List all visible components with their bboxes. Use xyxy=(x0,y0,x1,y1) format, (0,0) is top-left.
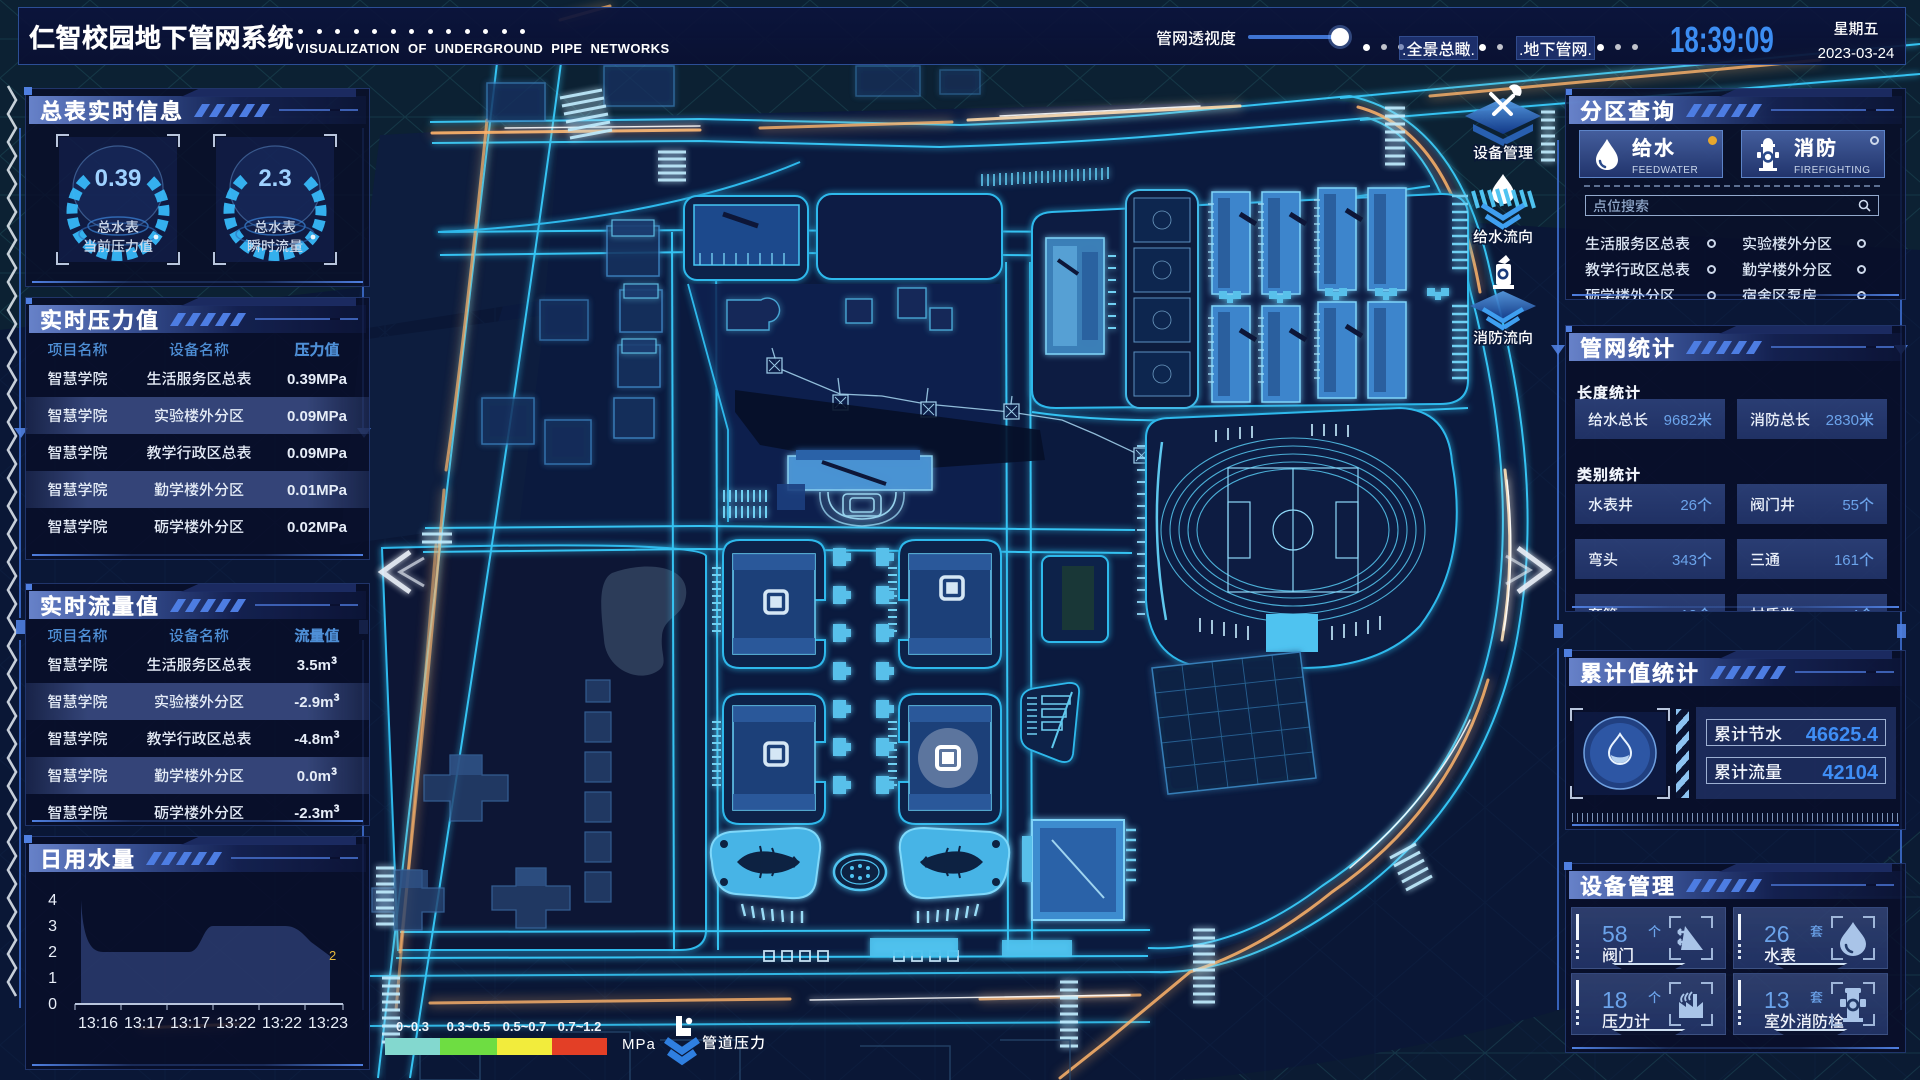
svg-text:13:16: 13:16 xyxy=(78,1009,118,1033)
svg-text:2: 2 xyxy=(329,945,336,964)
svg-text:13:22: 13:22 xyxy=(216,1009,256,1033)
svg-text:13:17: 13:17 xyxy=(124,1009,164,1033)
svg-text:13:23: 13:23 xyxy=(308,1009,348,1033)
svg-text:1: 1 xyxy=(48,964,57,988)
svg-text:0.39: 0.39 xyxy=(95,158,142,193)
svg-text:给水流向: 给水流向 xyxy=(1473,226,1533,247)
svg-text:3: 3 xyxy=(48,912,57,936)
svg-text:13:17: 13:17 xyxy=(170,1009,210,1033)
svg-text:4: 4 xyxy=(48,886,57,910)
svg-text:0: 0 xyxy=(48,990,57,1014)
svg-text:2.3: 2.3 xyxy=(258,158,291,193)
svg-text:消防流向: 消防流向 xyxy=(1473,327,1533,348)
svg-text:13:22: 13:22 xyxy=(262,1009,302,1033)
svg-text:设备管理: 设备管理 xyxy=(1473,142,1533,163)
svg-text:2: 2 xyxy=(48,938,57,962)
